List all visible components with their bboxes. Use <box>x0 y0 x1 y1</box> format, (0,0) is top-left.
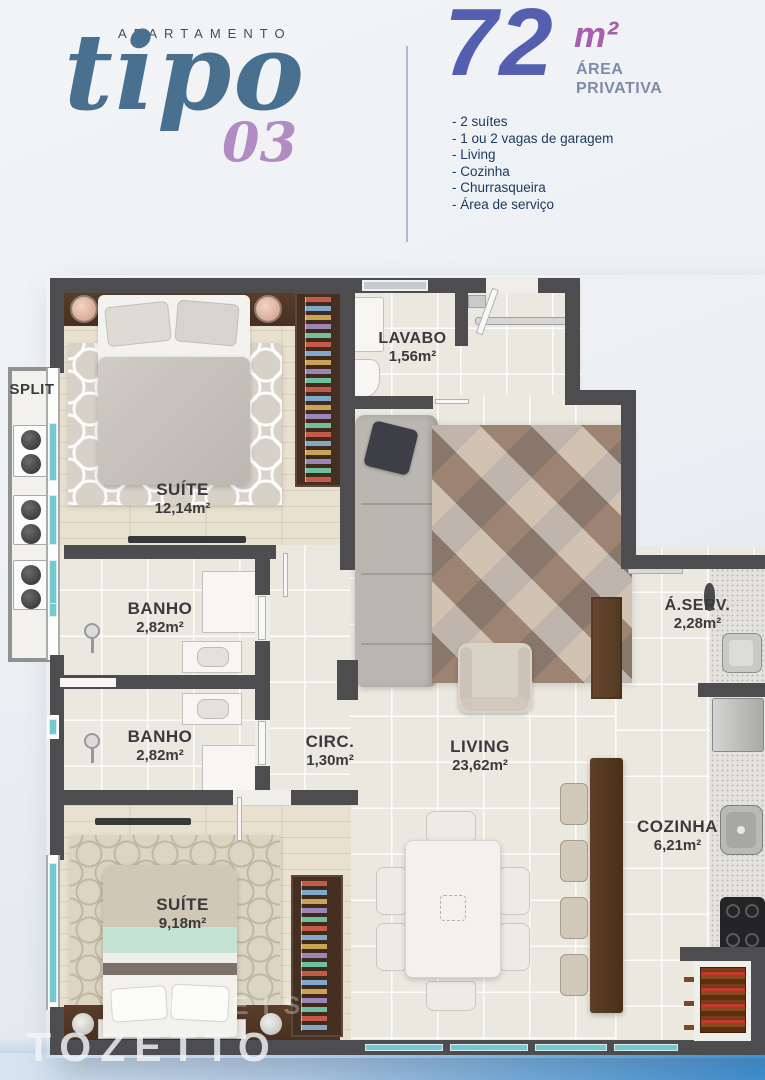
dining-chair <box>376 867 406 915</box>
fan-icon <box>21 565 41 585</box>
header-divider <box>406 46 408 242</box>
bar-stool <box>560 954 588 996</box>
sofa-cushion-seam <box>361 503 433 505</box>
laundry-tank <box>722 633 762 673</box>
ac-condenser-unit <box>13 425 49 477</box>
vanity-sink <box>197 699 229 719</box>
feature-item: - Cozinha <box>452 164 613 181</box>
bar-stool <box>560 840 588 882</box>
bar-stool <box>560 783 588 825</box>
pillow <box>104 301 172 347</box>
fridge <box>712 698 764 752</box>
tv-suite2 <box>95 818 191 825</box>
service-door-panel <box>591 597 622 699</box>
feature-item: - Churrasqueira <box>452 180 613 197</box>
window <box>49 495 57 545</box>
sofa-cushion-seam <box>361 643 433 645</box>
tank-basin <box>729 640 753 666</box>
door-leaf-banho1 <box>258 596 266 640</box>
dining-table <box>405 840 501 978</box>
table-centerpiece <box>440 895 466 921</box>
grill-skewer <box>684 1025 694 1030</box>
area-value: 72 <box>444 0 555 98</box>
wall <box>345 396 433 409</box>
ac-condenser-unit <box>13 495 49 545</box>
door-leaf-suite2 <box>237 797 242 841</box>
shower-stem <box>91 639 94 653</box>
sofa-cushion-seam <box>361 573 433 575</box>
area-caption-line2: PRIVATIVA <box>576 80 662 97</box>
feature-list: - 2 suítes - 1 ou 2 vagas de garagem - L… <box>452 114 613 213</box>
window <box>450 1044 528 1051</box>
room-label-aserv: Á.SERV. 2,28m² <box>630 597 765 632</box>
bed-blanket-white <box>103 953 237 963</box>
door-leaf-banho2 <box>258 721 266 765</box>
fan-icon <box>21 430 41 450</box>
burner <box>745 933 759 947</box>
bar-counter <box>590 758 623 1013</box>
area-unit: m² <box>574 14 618 56</box>
armchair-arm <box>518 647 530 703</box>
feature-item: - Living <box>452 147 613 164</box>
pillow <box>174 299 239 346</box>
wall <box>50 278 64 373</box>
lavabo-window <box>362 280 428 291</box>
area-caption-line1: ÁREA <box>576 61 623 78</box>
churrasqueira-grill-icon <box>700 967 746 1033</box>
burner <box>726 904 740 918</box>
burner <box>726 933 740 947</box>
dining-chair <box>500 923 530 971</box>
room-label-cozinha: COZINHA 6,21m² <box>610 817 745 854</box>
bed-blanket-brown <box>103 963 237 975</box>
wall <box>621 555 765 569</box>
wall <box>698 683 765 697</box>
bedside-lamp-icon <box>72 297 96 321</box>
fan-icon <box>21 524 41 544</box>
floor-plan: SPLIT SUÍTE 12,14m² LAVABO 1,56m² LIVING <box>0 255 765 1080</box>
entry-shelf <box>468 295 486 308</box>
split-label: SPLIT <box>4 381 60 398</box>
area-caption: ÁREA PRIVATIVA <box>576 60 662 98</box>
window <box>49 603 57 617</box>
churrasqueira-wall <box>751 947 765 1055</box>
window <box>365 1044 443 1051</box>
vanity-sink <box>197 647 229 667</box>
door-leaf-lavabo <box>435 399 469 404</box>
feature-item: - Área de serviço <box>452 197 613 214</box>
bed-duvet <box>98 357 250 485</box>
armchair-back <box>462 697 528 711</box>
wall <box>64 545 276 559</box>
window <box>49 719 57 735</box>
wall-niche <box>60 678 116 687</box>
wardrobe-clothes <box>305 297 331 482</box>
fan-icon <box>21 589 41 609</box>
dining-chair <box>376 923 406 971</box>
room-label-lavabo: LAVABO 1,56m² <box>355 330 470 365</box>
window <box>49 423 57 481</box>
wall <box>340 278 355 570</box>
burner <box>745 904 759 918</box>
grill-skewer <box>684 977 694 982</box>
door-leaf-suite1 <box>283 553 288 597</box>
coat-rail <box>475 317 567 325</box>
wall <box>337 660 358 700</box>
brand-number: 03 <box>222 110 297 174</box>
grill-skewer <box>684 1001 694 1006</box>
armchair <box>458 643 532 713</box>
tv-suite1 <box>128 536 246 543</box>
fan-icon <box>21 500 41 520</box>
page: { "header": { "kicker": "APARTAMENTO", "… <box>0 0 765 1080</box>
wall <box>565 278 580 405</box>
room-label-living: LIVING 23,62m² <box>410 737 550 774</box>
dining-chair <box>426 811 476 841</box>
vanity-banho1 <box>182 641 242 673</box>
room-label-suite1: SUÍTE 12,14m² <box>110 480 255 517</box>
window <box>614 1044 678 1051</box>
bedside-lamp-icon <box>256 297 280 321</box>
dining-chair <box>500 867 530 915</box>
bed-suite1 <box>98 295 250 485</box>
dining-chair <box>426 981 476 1011</box>
watermark-secondary: IMÓVEIS <box>112 992 314 1021</box>
feature-item: - 2 suítes <box>452 114 613 131</box>
room-label-circ: CIRC. 1,30m² <box>275 732 385 769</box>
armchair-arm <box>460 647 472 703</box>
ac-condenser-unit <box>13 560 49 610</box>
vanity-banho2 <box>182 693 242 725</box>
room-label-banho1: BANHO 2,82m² <box>90 599 230 636</box>
feature-item: - 1 ou 2 vagas de garagem <box>452 131 613 148</box>
fan-icon <box>21 454 41 474</box>
window <box>49 863 57 1003</box>
room-label-suite2: SUÍTE 9,18m² <box>110 895 255 932</box>
wall <box>50 790 358 805</box>
room-label-banho2: BANHO 2,82m² <box>90 727 230 764</box>
wall <box>621 390 636 568</box>
bar-stool <box>560 897 588 939</box>
window <box>535 1044 607 1051</box>
watermark-primary: TOZETTO <box>26 1024 279 1071</box>
